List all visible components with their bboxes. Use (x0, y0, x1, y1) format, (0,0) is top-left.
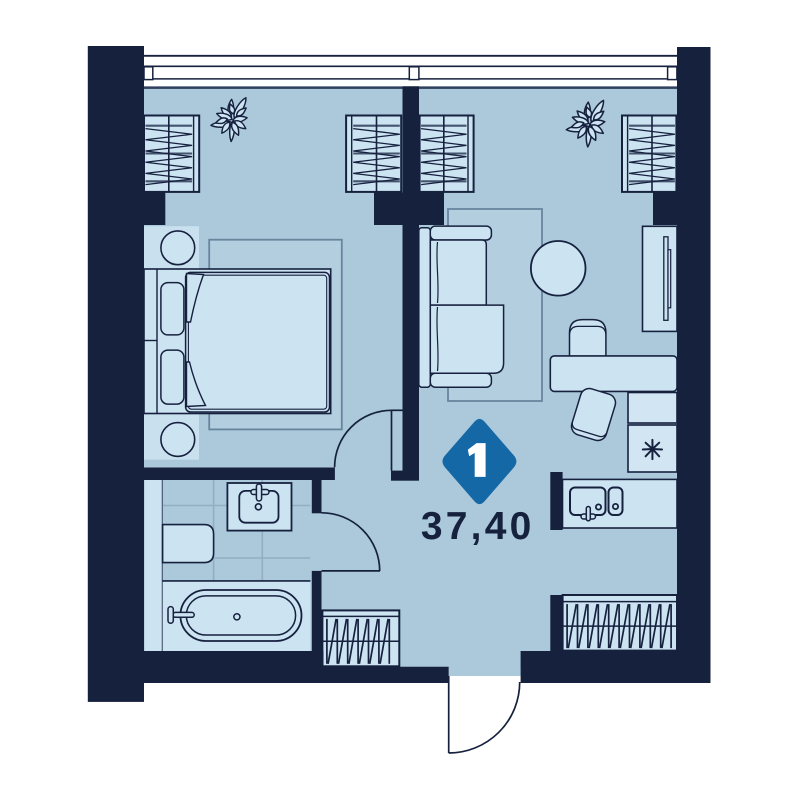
svg-text:37,40: 37,40 (421, 505, 535, 548)
